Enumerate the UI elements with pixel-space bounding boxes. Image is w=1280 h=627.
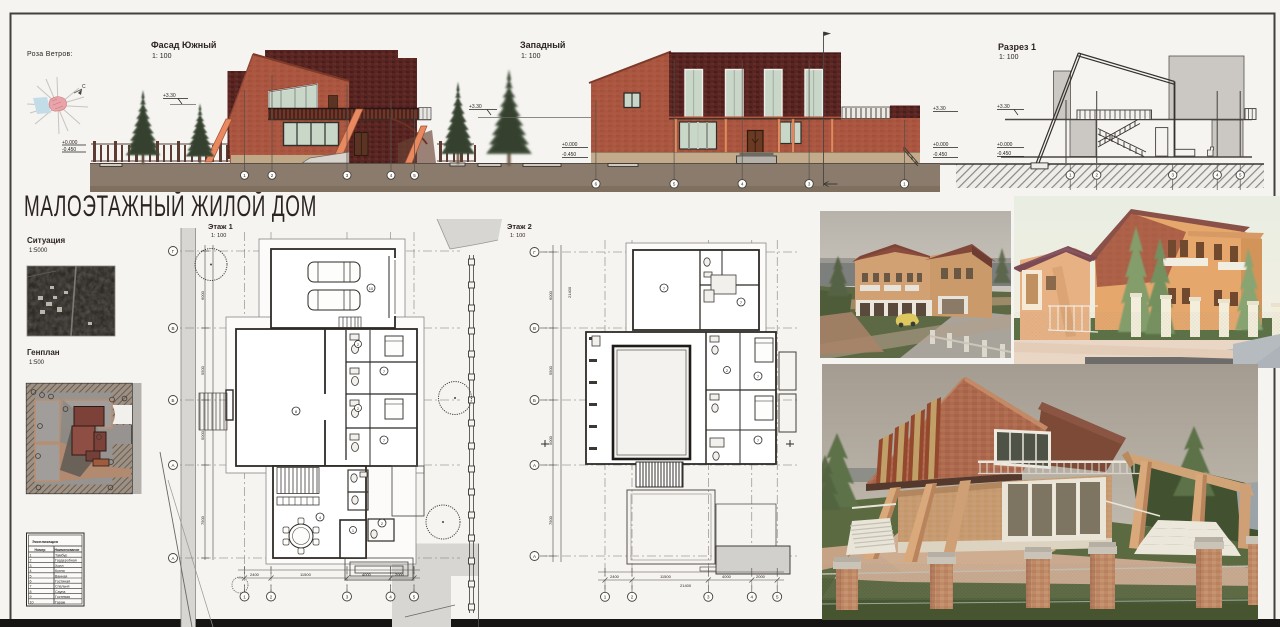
svg-text:1: 100: 1: 100 [152, 53, 172, 60]
svg-text:6: 6 [30, 580, 32, 584]
svg-text:21400: 21400 [680, 583, 692, 588]
svg-text:Этаж 2: Этаж 2 [507, 222, 532, 231]
svg-text:1: 100: 1: 100 [999, 54, 1019, 61]
svg-text:Фасад Южный: Фасад Южный [151, 40, 216, 50]
svg-text:+3.30: +3.30 [997, 104, 1010, 110]
svg-text:5: 5 [30, 574, 32, 578]
svg-text:+3.30: +3.30 [933, 106, 946, 112]
svg-text:Роза Ветров:: Роза Ветров: [27, 51, 73, 58]
svg-text:Гараж: Гараж [55, 600, 66, 604]
svg-text:Ванная: Ванная [55, 574, 67, 578]
svg-text:1: 100: 1: 100 [211, 233, 226, 239]
svg-text:5500: 5500 [200, 365, 205, 375]
svg-text:Генплан: Генплан [27, 348, 60, 357]
svg-text:Номер: Номер [35, 548, 46, 552]
svg-text:-0.450: -0.450 [933, 152, 947, 158]
svg-text:2: 2 [30, 559, 32, 563]
svg-text:6000: 6000 [200, 290, 205, 300]
svg-text:10: 10 [30, 600, 34, 604]
svg-text:10: 10 [369, 286, 374, 291]
svg-text:Тамбур: Тамбур [55, 554, 67, 558]
svg-text:Б: Б [172, 398, 175, 403]
svg-text:А: А [533, 463, 536, 468]
svg-text:Наименование: Наименование [55, 548, 80, 552]
svg-text:7500: 7500 [548, 515, 553, 525]
svg-text:+0.000: +0.000 [997, 142, 1013, 148]
svg-text:2000: 2000 [395, 572, 405, 577]
svg-text:7500: 7500 [200, 515, 205, 525]
svg-text:+0.000: +0.000 [562, 142, 578, 148]
svg-text:-0.450: -0.450 [562, 152, 576, 158]
svg-text:МАЛОЭТАЖНЫЙ ЖИЛОЙ ДОМ: МАЛОЭТАЖНЫЙ ЖИЛОЙ ДОМ [24, 187, 317, 223]
svg-text:21400: 21400 [567, 286, 572, 298]
svg-text:+3.30: +3.30 [469, 104, 482, 110]
svg-text:2400: 2400 [610, 574, 620, 579]
svg-text:5500: 5500 [548, 365, 553, 375]
svg-text:3: 3 [30, 564, 32, 568]
svg-text:11500: 11500 [660, 574, 672, 579]
svg-text:1:5000: 1:5000 [29, 248, 48, 254]
svg-text:1: 1 [30, 554, 32, 558]
svg-text:4000: 4000 [362, 572, 372, 577]
svg-text:5000: 5000 [200, 430, 205, 440]
svg-text:Гостевая: Гостевая [55, 595, 70, 599]
svg-text:В: В [171, 326, 174, 331]
svg-text:Холл: Холл [55, 564, 63, 568]
svg-text:4: 4 [30, 569, 32, 573]
svg-text:Спальня: Спальня [55, 585, 69, 589]
svg-text:2400: 2400 [250, 572, 260, 577]
svg-text:А: А [171, 556, 174, 561]
svg-text:-0.450: -0.450 [997, 151, 1011, 157]
svg-text:Разрез 1: Разрез 1 [998, 42, 1036, 52]
svg-text:Экспликация: Экспликация [32, 539, 59, 544]
svg-text:1: 100: 1: 100 [521, 53, 541, 60]
svg-text:9: 9 [30, 595, 32, 599]
svg-text:7: 7 [30, 585, 32, 589]
svg-text:8: 8 [30, 590, 32, 594]
svg-text:2000: 2000 [756, 574, 766, 579]
svg-text:Западный: Западный [520, 40, 565, 50]
svg-text:Сауна: Сауна [55, 590, 65, 594]
svg-text:Кухня: Кухня [55, 569, 65, 573]
svg-text:Б: Б [533, 398, 536, 403]
svg-text:Ситуация: Ситуация [27, 236, 65, 245]
svg-text:11500: 11500 [300, 572, 312, 577]
svg-text:Гостиная: Гостиная [55, 580, 70, 584]
svg-text:В: В [533, 326, 536, 331]
svg-text:Гардеробная: Гардеробная [55, 559, 77, 563]
svg-text:4000: 4000 [722, 574, 732, 579]
svg-text:Этаж 1: Этаж 1 [208, 222, 233, 231]
svg-text:1: 100: 1: 100 [510, 233, 525, 239]
svg-text:С: С [82, 84, 86, 90]
svg-text:+0.000: +0.000 [933, 142, 949, 148]
svg-text:6000: 6000 [548, 290, 553, 300]
svg-text:1:500: 1:500 [29, 360, 45, 366]
svg-text:А: А [171, 463, 174, 468]
svg-text:А: А [533, 554, 536, 559]
